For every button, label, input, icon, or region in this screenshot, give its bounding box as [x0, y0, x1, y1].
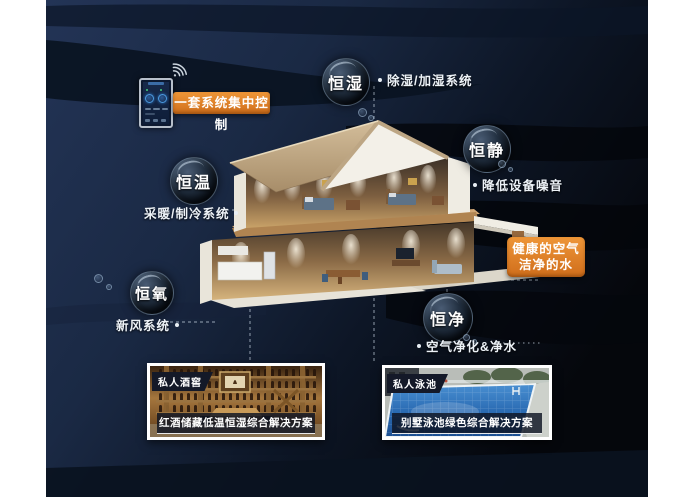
bubble-oxygen-label: 恒氧	[135, 283, 169, 304]
mini-bubble	[358, 108, 367, 117]
mini-bubble	[498, 160, 506, 168]
highlight-line2: 洁净的水	[507, 257, 585, 273]
bubble-temperature: 恒温	[170, 157, 218, 205]
smart-control-panel	[139, 78, 173, 128]
highlight-line1: 健康的空气	[507, 241, 585, 257]
pool-badge: 私人泳池	[387, 374, 448, 393]
label-humidity-system: 除湿/加湿系统	[378, 70, 472, 89]
wine-cellar-badge: 私人酒窖	[152, 372, 213, 391]
photo-card-wine-cellar: 私人酒窖 红酒储藏低温恒湿综合解决方案	[147, 363, 325, 440]
bullet-dot	[417, 344, 421, 348]
bubble-humidity-label: 恒湿	[328, 70, 364, 94]
label-temperature-system: 采暖/制冷系统	[144, 203, 238, 222]
pool-caption: 别墅泳池绿色综合解决方案	[392, 413, 542, 434]
label-oxygen-system: 新风系统	[116, 315, 179, 334]
bubble-temperature-label: 恒温	[176, 169, 212, 193]
bullet-dot	[175, 323, 179, 327]
infographic-page: 一套系统集中控制 恒湿 恒静 恒温 恒氧 恒净 除湿/加湿系统	[0, 0, 700, 497]
wine-cellar-caption: 红酒储藏低温恒湿综合解决方案	[157, 413, 315, 434]
mini-bubble	[94, 274, 103, 283]
highlight-tag: 健康的空气 洁净的水	[507, 237, 585, 277]
label-quiet-system: 降低设备噪音	[473, 175, 563, 194]
bullet-dot	[234, 211, 238, 215]
label-purity-system: 空气净化&净水	[417, 336, 517, 355]
control-knob-left	[145, 94, 154, 103]
central-control-tag: 一套系统集中控制	[173, 92, 270, 114]
bubble-quiet-label: 恒静	[469, 137, 505, 161]
bubble-humidity: 恒湿	[322, 58, 370, 106]
mini-bubble	[106, 284, 112, 290]
control-knob-right	[158, 94, 167, 103]
bubble-purity-label: 恒净	[430, 306, 466, 330]
mini-bubble	[368, 115, 374, 121]
bullet-dot	[473, 183, 477, 187]
mini-bubble	[508, 167, 513, 172]
bullet-dot	[378, 78, 382, 82]
scene-canvas: 一套系统集中控制 恒湿 恒静 恒温 恒氧 恒净 除湿/加湿系统	[46, 0, 648, 497]
photo-card-pool: 私人泳池 别墅泳池绿色综合解决方案	[382, 365, 552, 440]
bubble-oxygen: 恒氧	[130, 271, 174, 315]
